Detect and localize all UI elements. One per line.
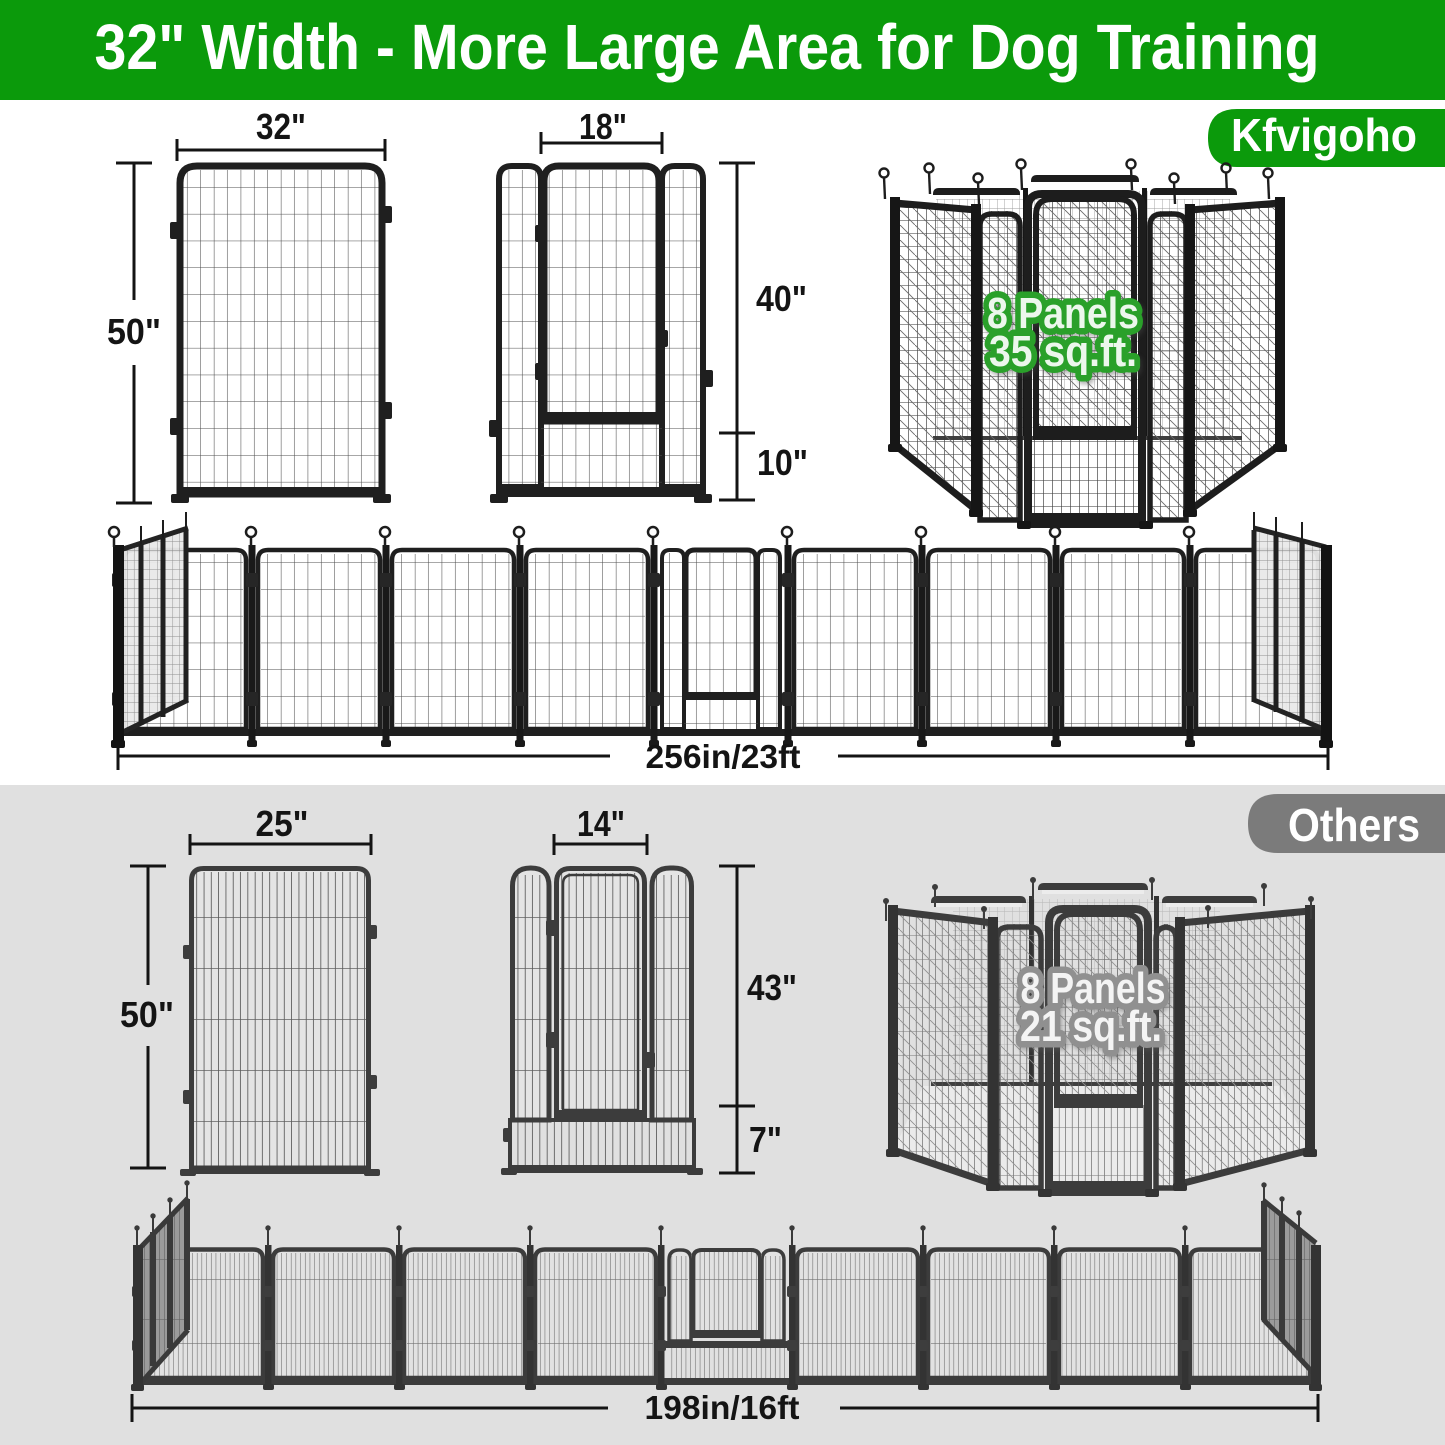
svg-text:198in/16ft: 198in/16ft xyxy=(645,1389,800,1426)
svg-text:Kfvigoho: Kfvigoho xyxy=(1231,109,1417,161)
svg-text:25": 25" xyxy=(256,803,309,844)
svg-text:40": 40" xyxy=(756,278,807,319)
svg-text:256in/23ft: 256in/23ft xyxy=(646,738,801,775)
svg-text:Others: Others xyxy=(1288,799,1420,851)
svg-text:7": 7" xyxy=(749,1119,782,1160)
svg-text:14": 14" xyxy=(577,803,625,844)
svg-text:32" Width - More Large Area fo: 32" Width - More Large Area for Dog Trai… xyxy=(95,11,1320,83)
svg-text:18": 18" xyxy=(579,106,627,147)
svg-text:32": 32" xyxy=(256,106,306,147)
svg-text:50": 50" xyxy=(120,994,174,1035)
svg-text:50": 50" xyxy=(107,311,161,352)
svg-text:10": 10" xyxy=(757,442,808,483)
svg-text:35 sq.ft.: 35 sq.ft. xyxy=(989,327,1137,376)
svg-text:21 sq.ft.: 21 sq.ft. xyxy=(1020,1002,1162,1051)
svg-text:43": 43" xyxy=(747,967,797,1008)
